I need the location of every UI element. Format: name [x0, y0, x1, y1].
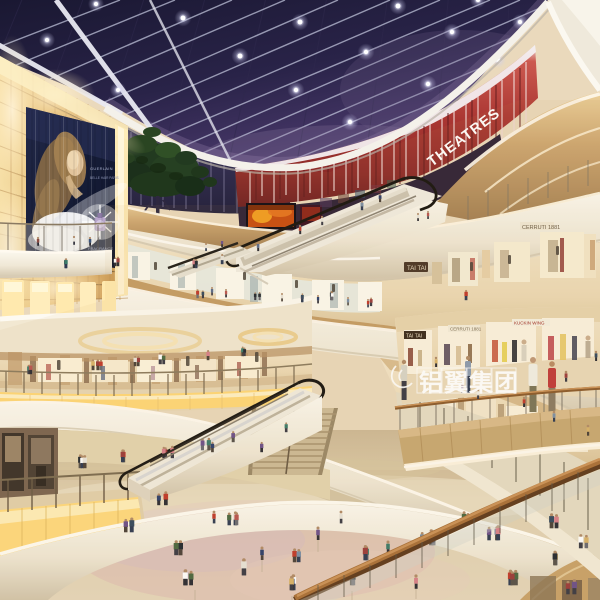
svg-text:BELLE HAIR PARIS: BELLE HAIR PARIS [90, 176, 119, 180]
